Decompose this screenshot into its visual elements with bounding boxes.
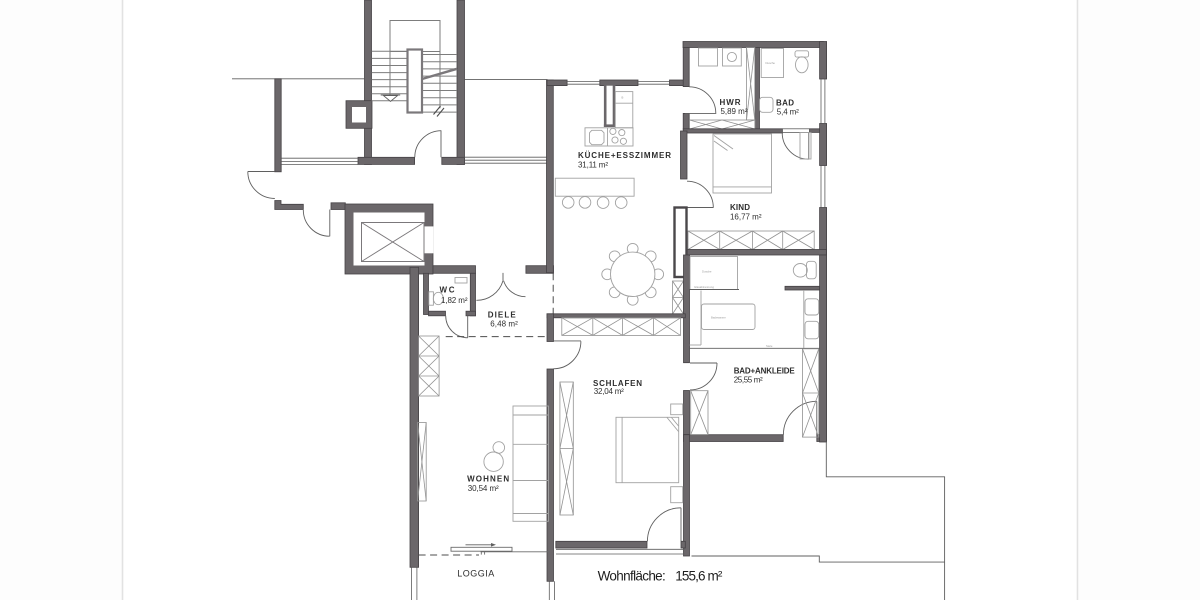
svg-text:Glasabtrennung: Glasabtrennung [694,285,714,289]
svg-text:25,55 m²: 25,55 m² [734,375,763,384]
svg-text:Badewanne: Badewanne [711,316,726,320]
svg-text:32,04 m²: 32,04 m² [594,387,624,396]
svg-text:5,4 m²: 5,4 m² [777,108,799,117]
svg-text:B: B [622,96,624,100]
svg-text:BAD+ANKLEIDE: BAD+ANKLEIDE [734,367,796,376]
svg-text:5,89 m²: 5,89 m² [721,107,748,116]
svg-text:1,82 m²: 1,82 m² [441,296,468,305]
svg-text:KÜCHE+ESSZIMMER: KÜCHE+ESSZIMMER [578,151,671,160]
svg-text:LOGGIA: LOGGIA [457,569,495,579]
svg-text:Stele: Stele [766,344,773,348]
svg-text:HWR: HWR [720,98,741,107]
svg-text:BAD: BAD [776,99,794,108]
svg-text:6,48 m²: 6,48 m² [490,320,518,329]
svg-text:DIELE: DIELE [488,310,517,319]
svg-text:155,6 m²: 155,6 m² [675,569,723,584]
svg-text:30,54 m²: 30,54 m² [468,484,499,493]
svg-text:16,77 m²: 16,77 m² [730,212,762,221]
svg-text:Wohnfläche:: Wohnfläche: [598,569,666,584]
svg-text:KIND: KIND [730,203,750,212]
svg-text:Dusche: Dusche [766,61,776,65]
svg-text:Dusche: Dusche [702,270,712,274]
svg-text:31,11 m²: 31,11 m² [578,161,608,170]
svg-text:WOHNEN: WOHNEN [467,475,509,484]
